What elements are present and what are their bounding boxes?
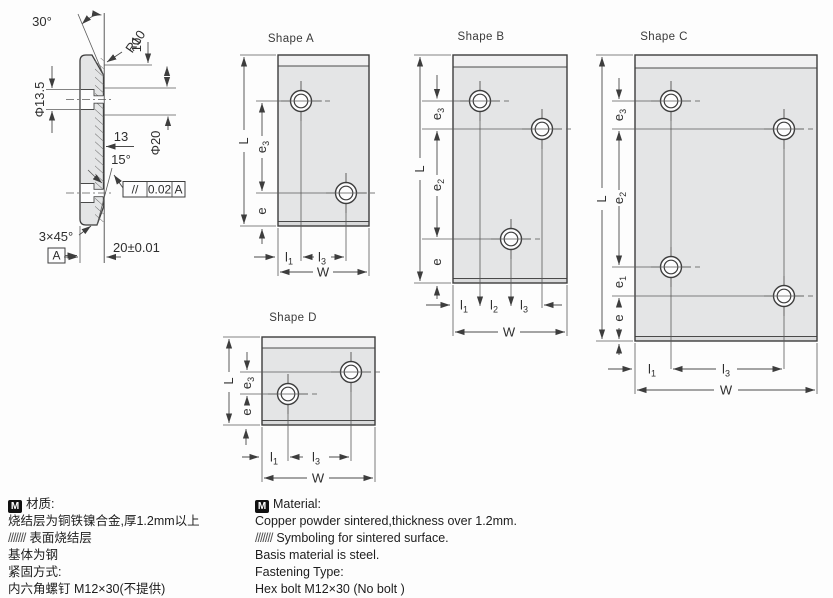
dim-label-l1: l1 xyxy=(460,298,468,315)
dim-label-e3: e3 xyxy=(239,377,256,389)
hatch-symbol: /////// xyxy=(8,531,25,545)
hatch-symbol: /////// xyxy=(255,531,272,545)
en-title-row: MMaterial: xyxy=(255,496,517,513)
tol-datum: A xyxy=(174,183,182,197)
dim-label-e: e xyxy=(611,314,626,321)
plate-body xyxy=(278,55,369,226)
m-badge-icon: M xyxy=(255,500,269,513)
en-title: Material: xyxy=(273,497,321,511)
dim-label-l3: l3 xyxy=(312,450,320,467)
datum-label: A xyxy=(52,249,60,263)
dim-label-dia20: Φ20 xyxy=(148,131,163,156)
shape-b-drawing: Shape B L e3 e2 e l1 l2 l3 xyxy=(412,31,571,340)
catalog-drawing-page: 30° R10 10 Φ20 Φ13.5 13 15° xyxy=(0,0,833,598)
cn-line: 内六角螺钉 M12×30(不提供) xyxy=(8,581,200,598)
angle-arc xyxy=(82,15,102,24)
dim-label-thickness: 20±0.01 xyxy=(113,240,160,255)
material-notes-en: MMaterial: Copper powder sintered,thickn… xyxy=(255,496,517,598)
en-line: Copper powder sintered,thickness over 1.… xyxy=(255,513,517,530)
dim-label-e3: e3 xyxy=(611,109,628,121)
cn-line: ///////表面烧结层 xyxy=(8,530,200,547)
dim-label-L: L xyxy=(594,195,609,202)
cn-line: 紧固方式: xyxy=(8,564,200,581)
dim-label-l2: l2 xyxy=(490,298,498,315)
cn-line: 烧结层为铜铁镍合金,厚1.2mm以上 xyxy=(8,513,200,530)
plate-body xyxy=(262,337,375,425)
dim-label-e: e xyxy=(254,207,269,214)
r10-leader xyxy=(107,52,122,62)
shape-c-title: Shape C xyxy=(640,31,688,43)
shape-a-drawing: Shape A L e3 e l1 l3 xyxy=(236,33,375,280)
tol-symbol: // xyxy=(132,183,139,197)
dim-label-10: 10 xyxy=(129,38,144,52)
technical-drawing: 30° R10 10 Φ20 Φ13.5 13 15° xyxy=(0,0,833,494)
upper-bore xyxy=(66,90,114,110)
dim-label-e1: e1 xyxy=(611,276,628,288)
dim-label-l1: l1 xyxy=(270,450,278,467)
dim-label-l1: l1 xyxy=(285,250,293,267)
cn-title: 材质: xyxy=(26,497,54,511)
dim-label-l3: l3 xyxy=(520,298,528,315)
dim-label-l3: l3 xyxy=(722,362,730,379)
section-view: 30° R10 10 Φ20 Φ13.5 13 15° xyxy=(32,13,185,263)
shape-d-title: Shape D xyxy=(269,312,317,324)
dim-label-dia135: Φ13.5 xyxy=(32,82,47,118)
dim-label-15deg: 15° xyxy=(111,152,131,167)
en-line: ///////Symboling for sintered surface. xyxy=(255,530,517,547)
dim-label-chamfer: 3×45° xyxy=(39,229,73,244)
dim-label-L: L xyxy=(412,165,427,172)
dim-label-L: L xyxy=(236,137,251,144)
dim-label-W: W xyxy=(720,383,733,398)
sintered-surface-hatch xyxy=(95,58,104,222)
dim-label-e2: e2 xyxy=(429,179,446,191)
en-line: Fastening Type: xyxy=(255,564,517,581)
en-line: Basis material is steel. xyxy=(255,547,517,564)
en-line: Hex bolt M12×30 (No bolt ) xyxy=(255,581,517,598)
shape-b-title: Shape B xyxy=(458,31,505,43)
dim-label-W: W xyxy=(503,325,516,340)
dim-label-e: e xyxy=(429,258,444,265)
dim-label-e2: e2 xyxy=(611,192,628,204)
dim-label-L: L xyxy=(221,377,236,384)
material-notes-cn: M材质: 烧结层为铜铁镍合金,厚1.2mm以上 ///////表面烧结层 基体为… xyxy=(8,496,200,598)
cn-line: 基体为钢 xyxy=(8,547,200,564)
dim-label-e: e xyxy=(239,408,254,415)
datum-a-box: A xyxy=(48,248,77,263)
dim-label-e3: e3 xyxy=(429,108,446,120)
tol-value: 0.02 xyxy=(148,183,172,197)
dim-label-l1: l1 xyxy=(648,362,656,379)
m-badge-icon: M xyxy=(8,500,22,513)
dim-label-30deg: 30° xyxy=(32,14,52,29)
shape-a-title: Shape A xyxy=(268,33,314,45)
shape-c-drawing: Shape C L e3 e2 e1 e xyxy=(594,31,817,398)
dim-label-W: W xyxy=(317,265,330,280)
dim-label-13: 13 xyxy=(114,129,128,144)
shape-d-drawing: Shape D L e3 e l1 l3 W xyxy=(221,312,380,486)
tolerance-frame: // 0.02 A xyxy=(114,175,185,197)
dim-label-W: W xyxy=(312,471,325,486)
cn-title-row: M材质: xyxy=(8,496,200,513)
dim-label-e3: e3 xyxy=(254,141,271,153)
